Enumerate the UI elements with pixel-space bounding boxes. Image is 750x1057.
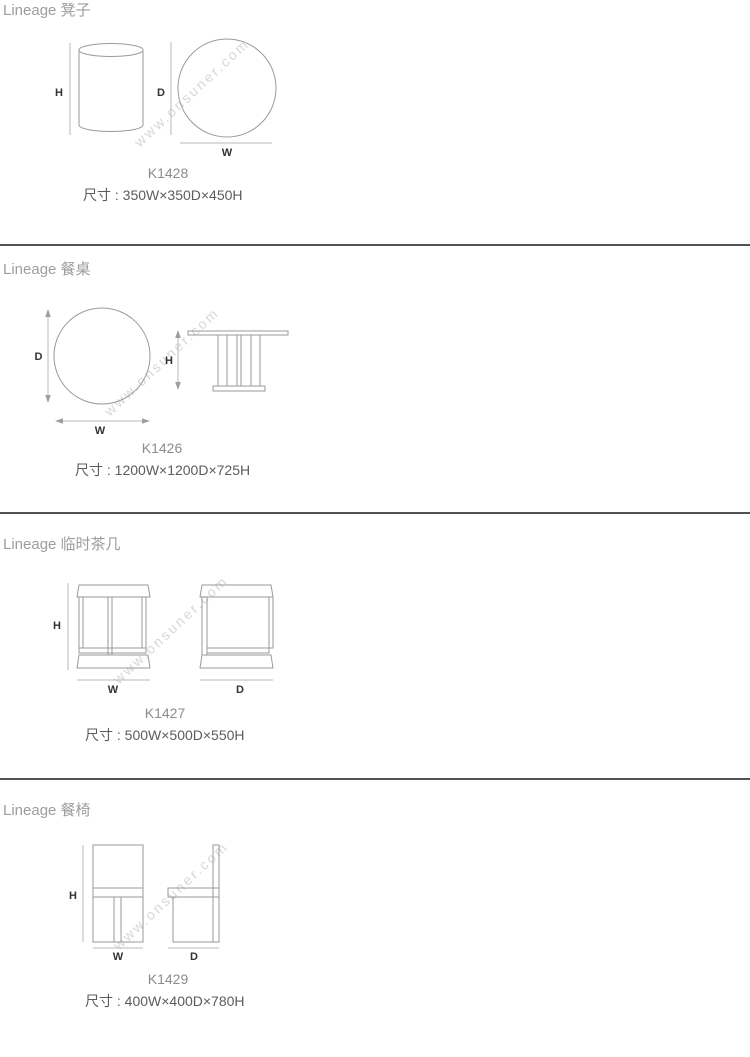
section-divider	[0, 512, 750, 514]
section-title: Lineage 凳子	[3, 2, 91, 20]
section-title: Lineage 餐桌	[3, 261, 91, 279]
dining-table-drawing: D W H	[30, 298, 330, 440]
cylinder-top-edge	[79, 44, 143, 57]
arrowhead-down	[45, 395, 51, 403]
model-number: K1427	[0, 705, 330, 721]
arrowhead-right	[142, 418, 150, 424]
arrowhead-left	[55, 418, 63, 424]
width-label: W	[222, 147, 233, 159]
side-table-drawing: H W D	[40, 563, 310, 700]
height-label: H	[69, 890, 77, 902]
table-top-outline	[54, 308, 150, 404]
height-label: H	[55, 87, 63, 99]
width-label: W	[95, 425, 106, 437]
side-table-front-view: H W	[53, 583, 150, 696]
table-top-slab	[188, 331, 288, 335]
seat	[168, 888, 219, 897]
chair-front-view: H W	[69, 845, 143, 963]
stool-top-view: D W	[157, 39, 276, 159]
size-spec: 尺寸 : 500W×500D×550H	[85, 725, 245, 745]
section-divider	[0, 778, 750, 780]
depth-label: D	[157, 87, 165, 99]
model-number: K1428	[0, 165, 336, 181]
dining-chair-drawing: H W D	[50, 833, 290, 965]
stool-front-view: H	[55, 43, 143, 135]
model-number: K1429	[0, 971, 336, 987]
table-base	[213, 386, 265, 391]
top-slab	[77, 585, 150, 597]
table-side-view: H	[165, 330, 288, 391]
height-label: H	[165, 355, 173, 367]
arrowhead-down	[175, 382, 181, 390]
right-panel	[142, 597, 146, 648]
height-label: H	[53, 620, 61, 632]
width-label: W	[113, 951, 124, 963]
arrowhead-up	[45, 309, 51, 317]
spec-sheet-page: Lineage 凳子 www.onsuner.com H D W K1428 尺…	[0, 0, 750, 1057]
depth-label: D	[190, 951, 198, 963]
table-top-view: D W	[35, 308, 150, 437]
stool-drawing: H D W	[40, 28, 330, 160]
chair-side-view: D	[168, 845, 219, 963]
section-title: Lineage 餐椅	[3, 802, 91, 820]
size-spec: 尺寸 : 350W×350D×450H	[83, 185, 243, 205]
base-slab	[77, 655, 150, 668]
width-label: W	[108, 684, 119, 696]
base-slab	[200, 655, 273, 668]
cylinder-bottom-edge	[79, 125, 143, 132]
arrowhead-up	[175, 330, 181, 338]
left-panel	[202, 597, 207, 655]
section-title: Lineage 临时茶几	[3, 536, 121, 554]
right-panel	[269, 597, 273, 648]
chair-outline	[93, 845, 143, 942]
bottom-shelf	[207, 648, 269, 653]
size-spec: 尺寸 : 400W×400D×780H	[85, 991, 245, 1011]
left-panel	[79, 597, 83, 648]
stool-top-outline	[178, 39, 276, 137]
size-spec: 尺寸 : 1200W×1200D×725H	[75, 460, 250, 480]
depth-label: D	[35, 351, 43, 363]
center-divider	[108, 597, 112, 655]
depth-label: D	[236, 684, 244, 696]
section-divider	[0, 244, 750, 246]
top-slab	[200, 585, 273, 597]
model-number: K1426	[0, 440, 324, 456]
side-table-side-view: D	[200, 585, 273, 696]
backrest	[213, 845, 219, 942]
